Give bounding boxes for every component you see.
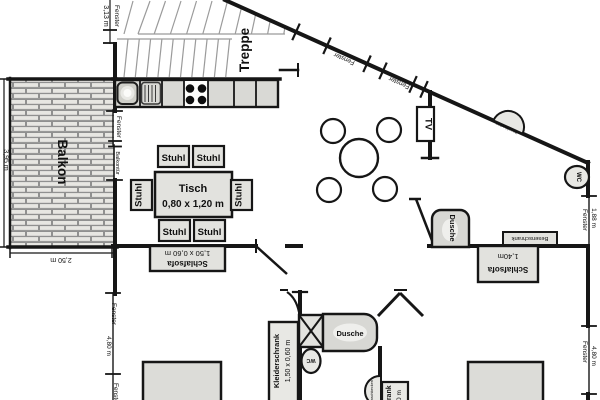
chair-label: Stuhl (234, 183, 245, 207)
broom-closet-label: Besenschrank (512, 235, 549, 241)
window-label-left-bottom: Fenster (112, 383, 119, 400)
sleep-sofa-right: 1,40m Schlafsofa (478, 246, 538, 282)
wardrobe: Kleiderschrank 1,50 x 0,60 m (269, 322, 298, 400)
chair-label: Stuhl (162, 153, 186, 164)
chair-label: Stuhl (198, 227, 222, 238)
round-table-set (317, 118, 401, 202)
sofa2-size-label: 1,40m (498, 252, 519, 261)
closet-label: Schrank (386, 385, 393, 400)
chair-label: Stuhl (134, 183, 145, 207)
round-chair (373, 177, 397, 201)
bed-right (468, 362, 543, 400)
bath-upper: Dusche WC Waschbecken (432, 111, 589, 247)
balcony: Balkon (8, 78, 117, 248)
sink (118, 83, 138, 105)
shower-label-upper: Dusche (448, 214, 457, 241)
door-bath-chevron-left (378, 293, 400, 316)
bath-lower: Dusche WC Waschbecken (299, 314, 380, 400)
small-closet: Schrank 0,60 m (382, 382, 408, 400)
window-label-right-lower: Fenster (581, 341, 588, 364)
balcony-depth-label: 3,95 m (2, 149, 9, 171)
door-bedroom-right (400, 293, 423, 316)
chair-label: Stuhl (163, 227, 187, 238)
balcony-width-label: 2,50 m (50, 256, 72, 263)
floor-plan-page: Balkon 3,95 m 2,50 m 3,13 m Fenster (0, 0, 600, 400)
wardrobe-size-label: 1,50 x 0,60 m (285, 340, 292, 383)
closet-size-label: 0,60 m (396, 390, 403, 400)
drainer (142, 83, 161, 105)
wardrobe-label: Kleiderschrank (272, 333, 281, 388)
table-label: Tisch (179, 183, 208, 195)
door-bath-lower (287, 292, 299, 312)
bed-left (143, 362, 221, 400)
sleep-sofa-living: 1,50 x 0,60 m Schlafsofa (150, 246, 225, 271)
round-chair (321, 119, 345, 143)
round-chair (377, 118, 401, 142)
window-label-kitchen: Fenster (115, 116, 122, 139)
window-label-top-left: Fenster (113, 5, 120, 28)
door-bath-upper (416, 199, 433, 243)
round-chair (317, 178, 341, 202)
staircase (117, 1, 290, 77)
washbasin-label-lower: Waschbecken (370, 380, 374, 400)
wc-label-upper: WC (575, 172, 581, 183)
dining-set: Tisch 0,80 x 1,20 m Stuhl Stuhl Stuhl St… (131, 146, 252, 241)
chair-label: Stuhl (197, 153, 221, 164)
door-swings (257, 199, 433, 316)
window-188-label: 1,88 m (590, 208, 597, 228)
table-size-label: 0,80 x 1,20 m (162, 199, 224, 210)
round-table (340, 139, 378, 177)
sofa2-label: Schlafsofa (487, 265, 528, 274)
window-label-right-upper: Fenster (581, 209, 588, 232)
window-480-label-left: 4,80 m (105, 336, 112, 356)
floor-plan: Balkon 3,95 m 2,50 m 3,13 m Fenster (0, 0, 600, 400)
balcony-door-label: Balkontür (114, 151, 120, 174)
sofa-label: Schlafsofa (167, 259, 208, 268)
sofa-size-label: 1,50 x 0,60 m (165, 249, 210, 258)
window-313-label: 3,13 m (102, 5, 109, 27)
wc-label-lower: WC (306, 357, 315, 363)
balcony-label: Balkon (55, 139, 70, 184)
window-480-label-right: 4,80 m (590, 346, 597, 366)
broom-closet: Besenschrank (503, 232, 557, 245)
window-label-left-lower: Fenster (110, 303, 117, 326)
kitchen-counter (115, 80, 278, 107)
door-bedroom-left (257, 247, 287, 274)
shower-label-lower: Dusche (336, 329, 363, 338)
stairs-label: Treppe (237, 27, 252, 72)
tv-label: TV (423, 118, 434, 131)
tv-unit: TV (417, 107, 434, 141)
